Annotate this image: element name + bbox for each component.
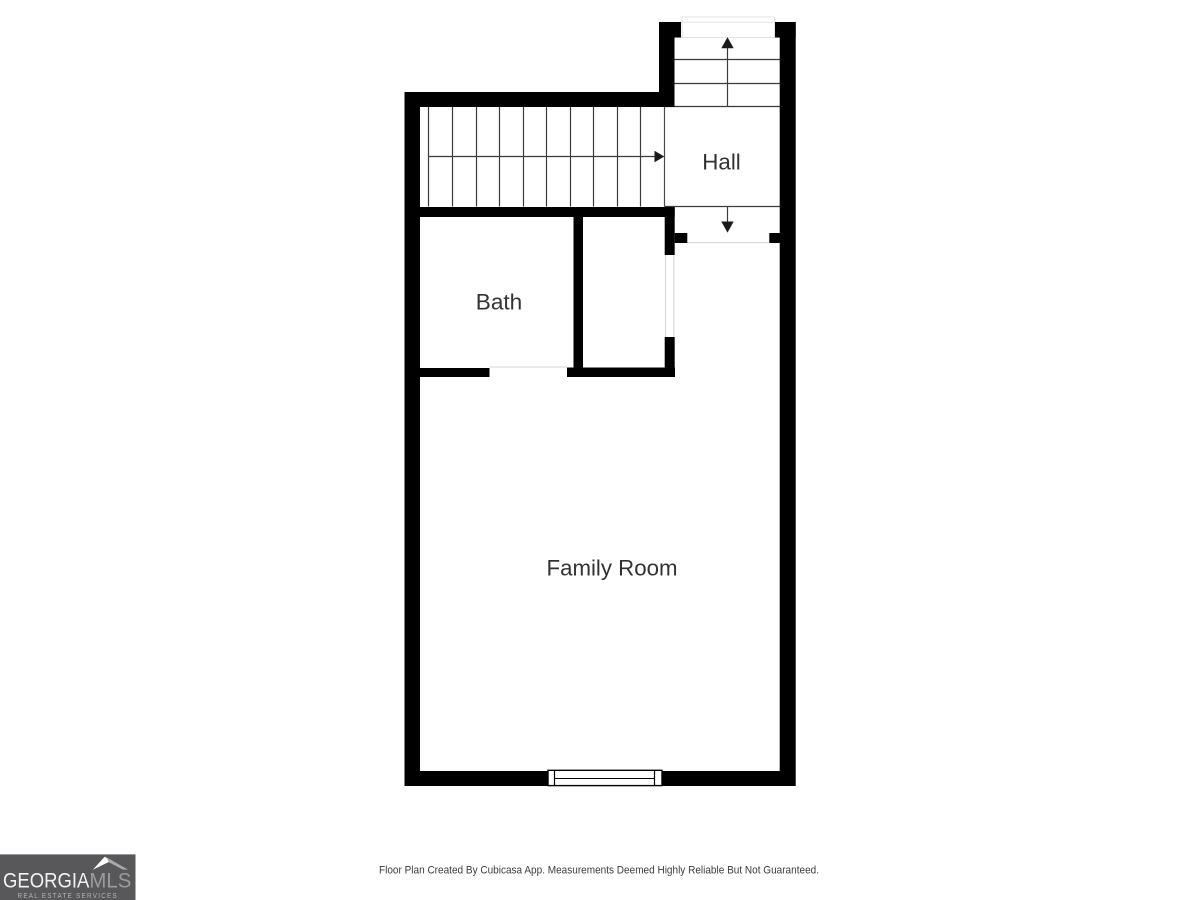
svg-text:Hall: Hall [702,149,741,174]
svg-text:GEORGIA: GEORGIA [3,868,90,893]
svg-text:Family Room: Family Room [547,556,678,581]
svg-text:Bath: Bath [476,290,523,315]
svg-text:REAL ESTATE SERVICES: REAL ESTATE SERVICES [18,891,119,900]
svg-text:Floor Plan Created By Cubicasa: Floor Plan Created By Cubicasa App. Meas… [379,865,819,877]
svg-text:MLS: MLS [89,868,131,893]
